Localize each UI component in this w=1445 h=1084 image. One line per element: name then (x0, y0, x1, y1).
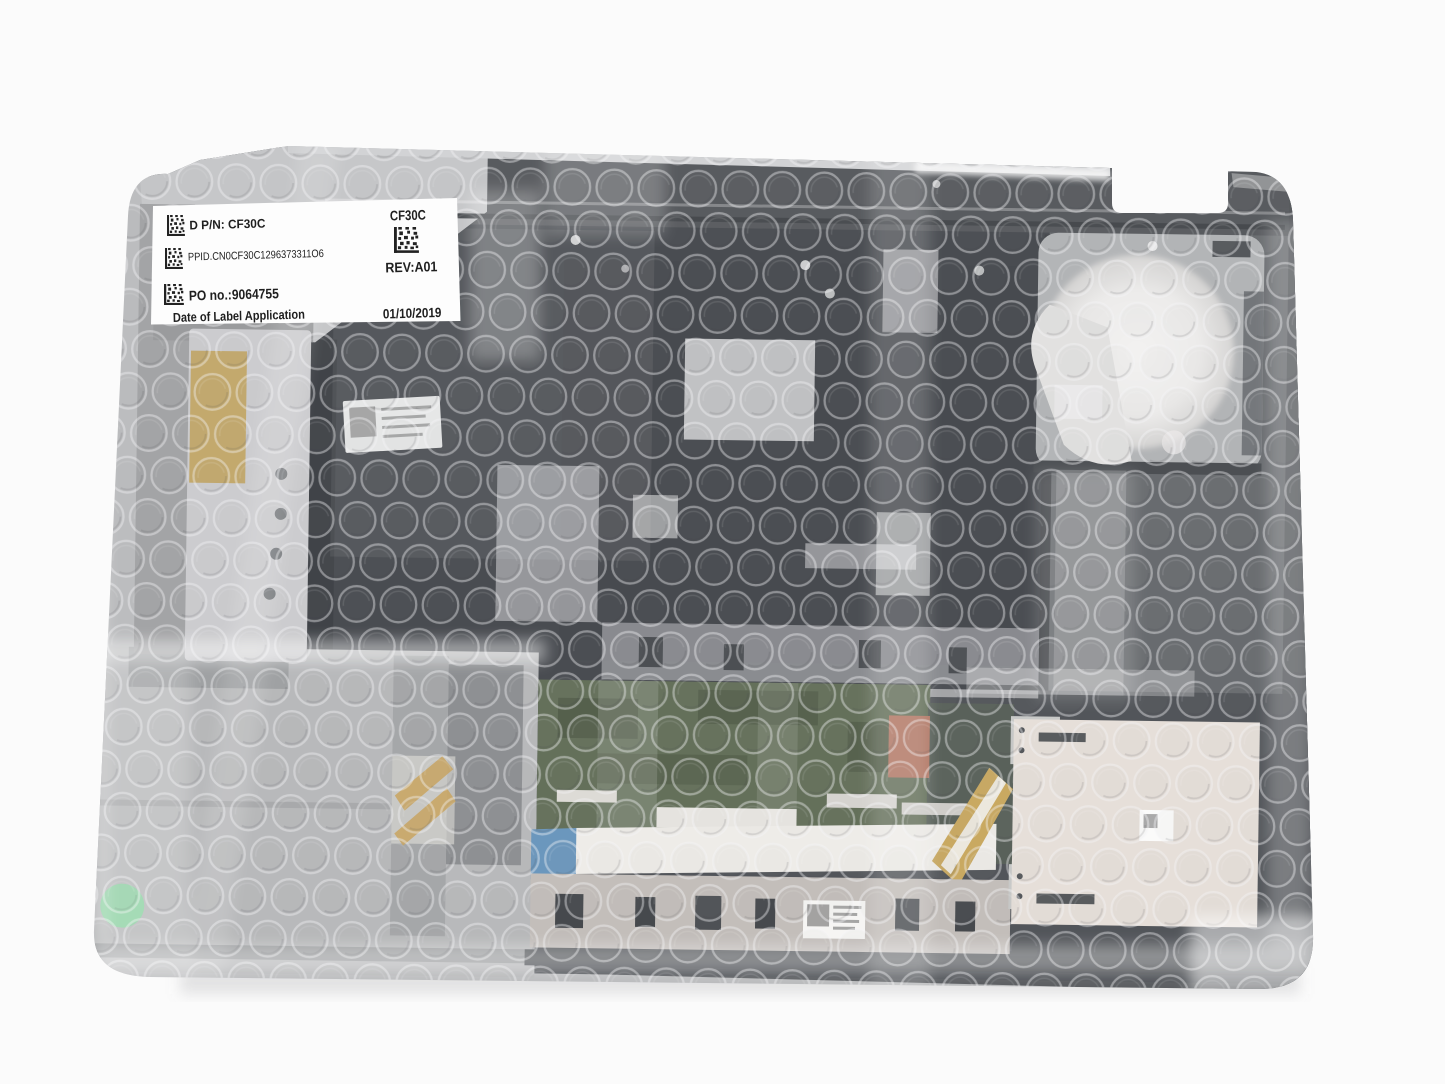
svg-text:D P/N: CF30C: D P/N: CF30C (189, 217, 265, 233)
svg-text:CF30C: CF30C (390, 207, 426, 224)
svg-text:REV:A01: REV:A01 (385, 258, 438, 275)
svg-text:01/10/2019: 01/10/2019 (383, 305, 442, 322)
svg-text:PO no.:9064755: PO no.:9064755 (189, 285, 280, 303)
